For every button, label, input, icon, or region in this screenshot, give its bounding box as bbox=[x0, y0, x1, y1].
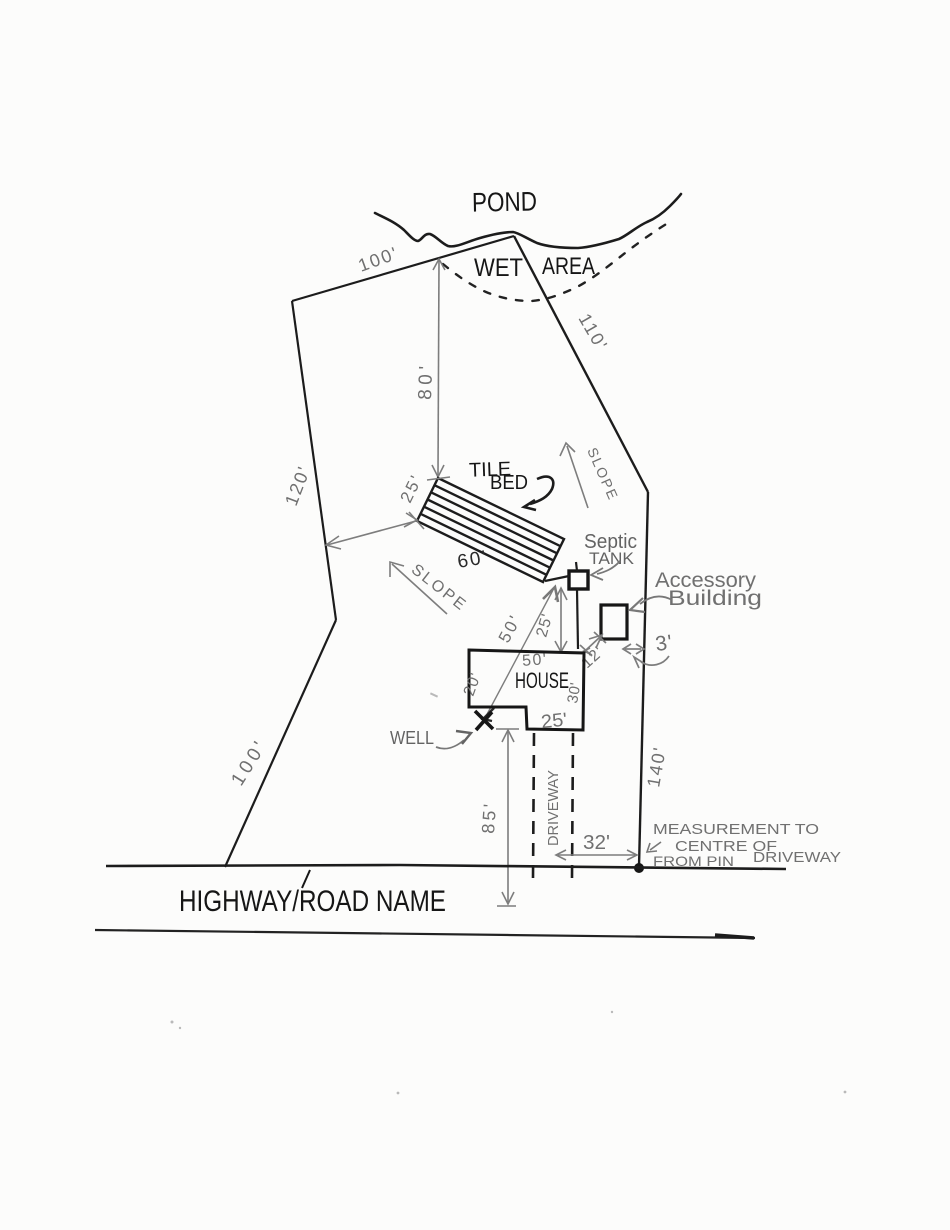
svg-text:MEASUREMENT TO: MEASUREMENT TO bbox=[653, 821, 819, 838]
svg-text:DRIVEWAY: DRIVEWAY bbox=[545, 770, 562, 846]
svg-text:POND: POND bbox=[472, 186, 538, 217]
svg-text:32': 32' bbox=[583, 832, 610, 854]
svg-text:25': 25' bbox=[540, 710, 568, 734]
svg-text:Building: Building bbox=[668, 587, 762, 610]
svg-text:TANK: TANK bbox=[589, 549, 635, 568]
svg-text:AREA: AREA bbox=[542, 253, 595, 280]
svg-text:3': 3' bbox=[654, 631, 675, 656]
svg-text:85': 85' bbox=[478, 800, 500, 834]
svg-text:HIGHWAY/ROAD NAME: HIGHWAY/ROAD NAME bbox=[179, 885, 446, 918]
svg-text:WELL: WELL bbox=[390, 728, 434, 748]
svg-text:80': 80' bbox=[415, 361, 437, 400]
svg-text:BED: BED bbox=[490, 472, 528, 494]
svg-text:WET: WET bbox=[474, 254, 523, 282]
svg-text:HOUSE: HOUSE bbox=[515, 668, 569, 693]
svg-text:50': 50' bbox=[522, 651, 548, 670]
svg-text:DRIVEWAY: DRIVEWAY bbox=[753, 849, 841, 866]
svg-text:30': 30' bbox=[564, 681, 584, 705]
